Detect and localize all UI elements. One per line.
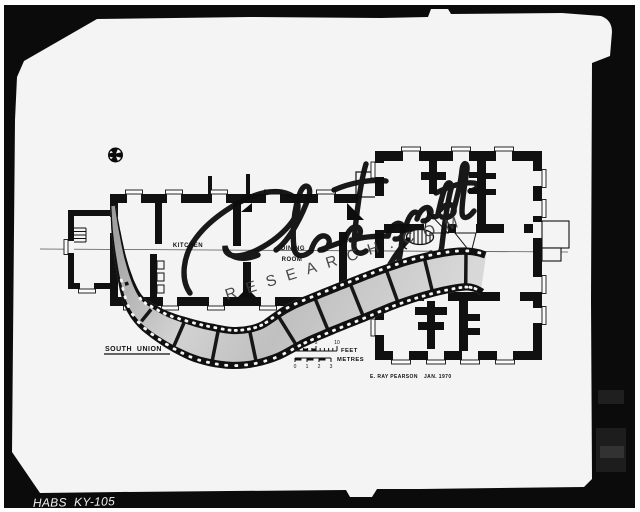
- svg-text:METRES: METRES: [337, 357, 364, 363]
- svg-text:1: 1: [306, 364, 309, 370]
- svg-text:3: 3: [330, 364, 333, 370]
- svg-text:E. RAY PEARSON: E. RAY PEARSON: [370, 374, 418, 380]
- svg-text:HABS KY-105: HABS KY-105: [33, 494, 115, 510]
- svg-text:10: 10: [334, 340, 340, 346]
- svg-text:0: 0: [294, 364, 297, 370]
- svg-text:JAN. 1970: JAN. 1970: [424, 374, 452, 380]
- svg-text:FEET: FEET: [341, 348, 358, 354]
- svg-text:2: 2: [318, 364, 321, 370]
- svg-text:SOUTH UNION: SOUTH UNION: [105, 346, 162, 353]
